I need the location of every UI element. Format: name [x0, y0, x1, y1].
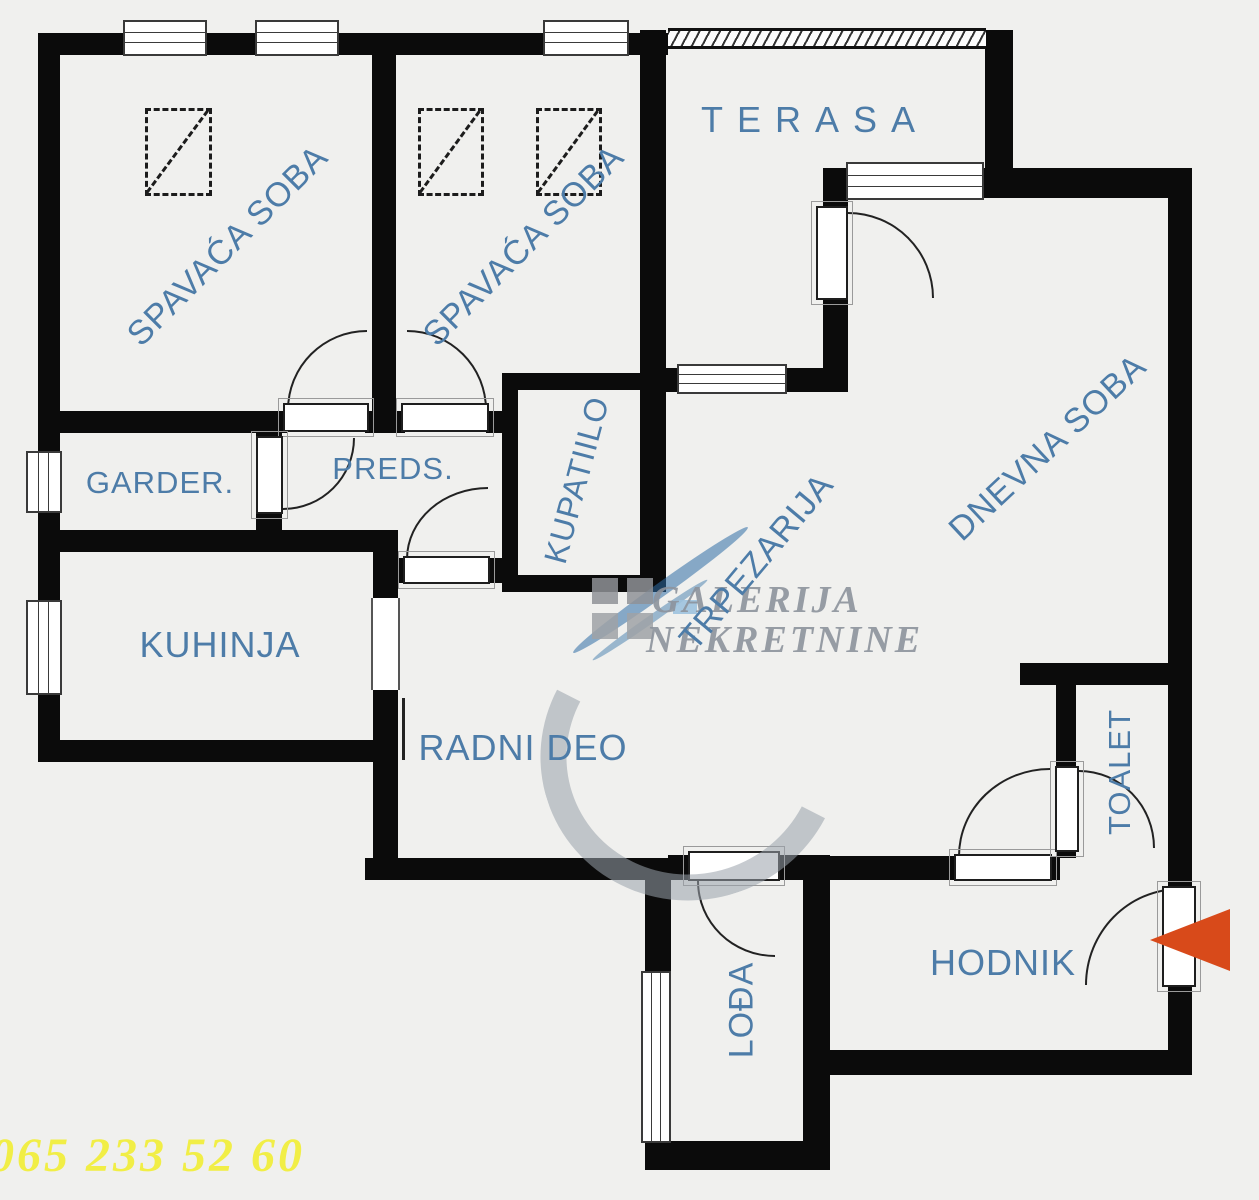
room-label-terrace: TERASA [701, 99, 929, 141]
room-label-loggia: LOĐA [723, 962, 762, 1059]
wall-segment [365, 411, 405, 433]
wall-segment [985, 30, 1013, 198]
window [677, 364, 787, 394]
wall-segment [372, 33, 396, 433]
wall-segment [830, 856, 960, 880]
kitchen-opening [371, 598, 400, 690]
door-leaf-living [954, 854, 1052, 881]
wall-segment [38, 740, 398, 762]
wardrobe-symbol [418, 108, 484, 196]
door-swing-arc [697, 881, 775, 957]
door-leaf-bedroom1 [283, 403, 369, 432]
door-swing-arc [958, 768, 1050, 856]
door-swing-arc [406, 487, 488, 559]
room-label-hallway: PREDS. [332, 451, 453, 487]
door-leaf-wardrobe [256, 436, 283, 514]
door-leaf-terrace [816, 206, 848, 300]
wall-segment [640, 30, 666, 592]
room-label-corridor: HODNIK [930, 942, 1076, 984]
window [543, 20, 629, 56]
room-label-wardrobe: GARDER. [86, 465, 234, 501]
phone-number: 065 233 52 60 [0, 1128, 305, 1183]
door-swing-arc [287, 330, 367, 410]
wall-segment [1020, 663, 1192, 685]
wall-segment [502, 575, 666, 592]
room-label-kitchen: KUHINJA [139, 624, 300, 666]
wall-segment [1168, 168, 1192, 890]
wardrobe-symbol [145, 108, 212, 196]
entrance-arrow-icon [1150, 909, 1230, 971]
wall-segment [1056, 685, 1076, 770]
terrace-railing-hatch [668, 28, 986, 49]
wall-segment [1168, 985, 1192, 1075]
watermark-square-icon [592, 613, 618, 639]
watermark-square-icon [627, 613, 653, 639]
wall-segment [38, 530, 398, 552]
window [846, 162, 984, 200]
counter-line [402, 698, 405, 760]
wall-segment [365, 858, 670, 880]
room-label-dining: TRPEZARIJA [672, 466, 842, 658]
door-leaf-hallway [403, 556, 490, 584]
wall-segment [830, 1050, 1192, 1075]
window [255, 20, 339, 56]
door-leaf-loggia [688, 851, 780, 881]
window [123, 20, 207, 56]
door-swing-arc [848, 212, 934, 298]
room-label-work-area: RADNI DEO [418, 727, 627, 769]
wall-segment [803, 855, 830, 1170]
wall-segment [38, 411, 287, 433]
window [641, 971, 671, 1143]
window [26, 600, 62, 695]
room-label-toilet: TOALET [1102, 709, 1138, 835]
floor-plan: SPAVAĆA SOBA SPAVAĆA SOBA TERASA GARDER.… [0, 0, 1259, 1200]
room-label-living: DNEVNA SOBA [942, 347, 1155, 549]
window [26, 451, 62, 513]
door-leaf-toilet [1055, 766, 1079, 852]
wall-segment [373, 530, 398, 880]
room-label-bathroom: KUPATIILO [537, 392, 617, 567]
wall-segment [776, 855, 805, 880]
door-leaf-bedroom2 [401, 403, 489, 432]
